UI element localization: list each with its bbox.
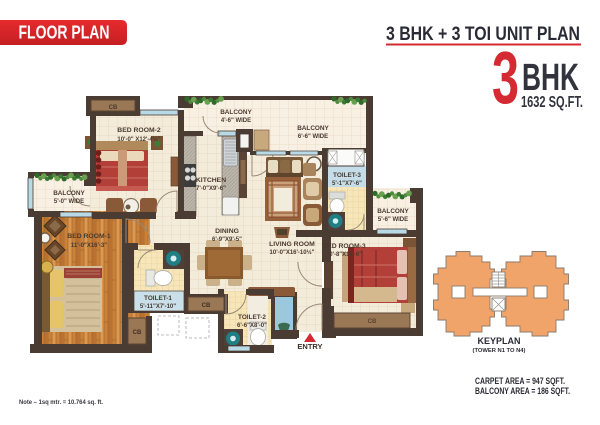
svg-text:(TOWER N1 TO N4): (TOWER N1 TO N4) <box>473 348 526 354</box>
svg-text:BALCONY: BALCONY <box>220 109 252 116</box>
svg-text:5'-11"X7'-10": 5'-11"X7'-10" <box>140 304 176 310</box>
svg-text:BALCONY: BALCONY <box>297 125 329 132</box>
svg-text:3 BHK + 3 TOI UNIT PLAN: 3 BHK + 3 TOI UNIT PLAN <box>386 24 580 45</box>
svg-text:11'-0"X16'-3": 11'-0"X16'-3" <box>71 243 107 249</box>
svg-text:5'-1"X7'-6": 5'-1"X7'-6" <box>332 181 362 187</box>
svg-text:BALCONY AREA = 186 SQFT.: BALCONY AREA = 186 SQFT. <box>475 386 570 396</box>
svg-text:5'-6" WIDE: 5'-6" WIDE <box>378 217 408 223</box>
svg-text:LIVING ROOM: LIVING ROOM <box>269 241 315 248</box>
svg-text:6'-6" WIDE: 6'-6" WIDE <box>298 134 328 140</box>
svg-text:3: 3 <box>492 36 519 119</box>
svg-text:10'-0"X16'-10½": 10'-0"X16'-10½" <box>270 249 315 256</box>
svg-text:BALCONY: BALCONY <box>377 208 409 215</box>
svg-text:10'-8"X11'-6": 10'-8"X11'-6" <box>326 252 362 258</box>
svg-text:TOILET-1: TOILET-1 <box>144 295 172 302</box>
svg-text:KEYPLAN: KEYPLAN <box>477 336 520 346</box>
svg-text:Note – 1sq mtr. = 10.764 sq. f: Note – 1sq mtr. = 10.764 sq. ft. <box>19 399 103 406</box>
svg-text:TOILET-2: TOILET-2 <box>238 314 266 321</box>
svg-text:4'-6" WIDE: 4'-6" WIDE <box>221 118 251 124</box>
svg-text:ENTRY: ENTRY <box>297 342 322 351</box>
svg-text:1632 SQ.FT.: 1632 SQ.FT. <box>521 94 583 111</box>
svg-text:BED ROOM-3: BED ROOM-3 <box>322 243 366 250</box>
svg-text:CB: CB <box>133 330 142 336</box>
svg-text:CARPET AREA = 947 SQFT.: CARPET AREA = 947 SQFT. <box>475 376 565 386</box>
svg-text:BHK: BHK <box>522 57 579 99</box>
svg-text:KITCHEN: KITCHEN <box>196 177 226 184</box>
svg-text:CB: CB <box>202 303 211 309</box>
svg-text:6'-9"X9'-5": 6'-9"X9'-5" <box>212 237 242 243</box>
svg-text:7'-0"X9'-6": 7'-0"X9'-6" <box>196 186 226 192</box>
svg-text:FLOOR PLAN: FLOOR PLAN <box>19 23 110 43</box>
svg-text:6'-6"X8'-0": 6'-6"X8'-0" <box>237 323 267 329</box>
svg-text:BED ROOM-2: BED ROOM-2 <box>117 127 161 134</box>
svg-text:DINING: DINING <box>215 228 239 235</box>
svg-text:CB: CB <box>368 319 377 325</box>
svg-text:CB: CB <box>109 105 118 111</box>
svg-text:5'-0" WIDE: 5'-0" WIDE <box>54 199 84 205</box>
svg-text:BED ROOM-1: BED ROOM-1 <box>67 233 111 240</box>
svg-text:10'-0" X12'-4½": 10'-0" X12'-4½" <box>117 136 160 143</box>
svg-text:TOILET-3: TOILET-3 <box>333 172 361 179</box>
svg-text:BALCONY: BALCONY <box>53 190 85 197</box>
